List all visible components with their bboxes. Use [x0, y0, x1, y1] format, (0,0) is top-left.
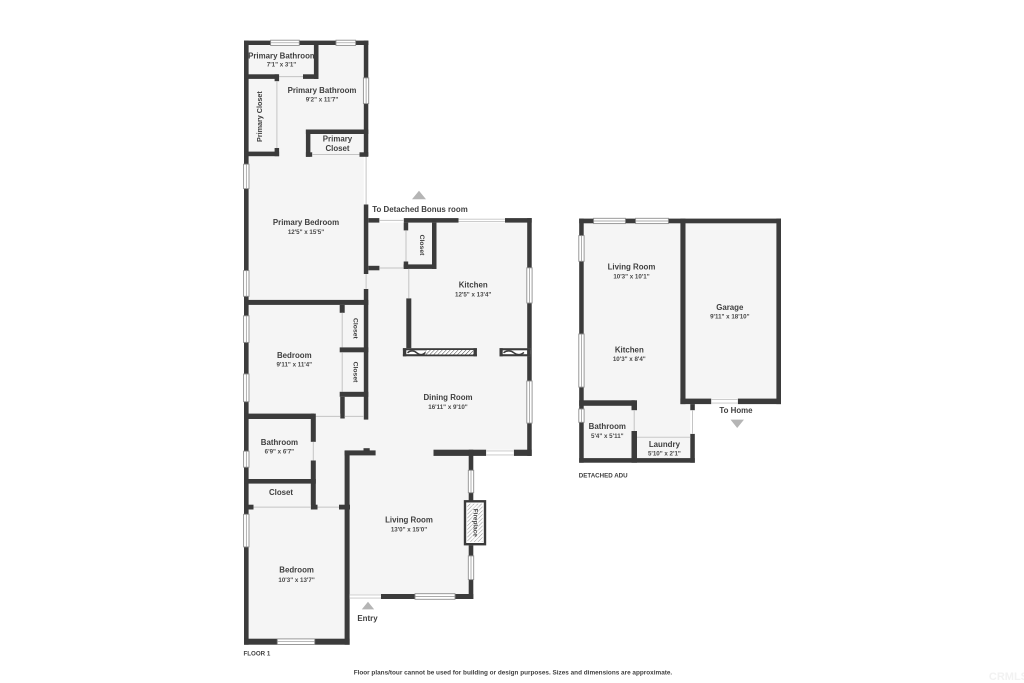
svg-text:FLOOR 1: FLOOR 1: [244, 651, 271, 658]
svg-text:Living Room: Living Room: [385, 516, 433, 525]
svg-text:To Home: To Home: [719, 406, 753, 415]
svg-text:Bathroom: Bathroom: [261, 438, 298, 447]
svg-text:Kitchen: Kitchen: [459, 281, 488, 290]
svg-text:9'11" x 18'10": 9'11" x 18'10": [710, 314, 750, 321]
svg-text:5'4" x 5'11": 5'4" x 5'11": [591, 433, 624, 440]
svg-text:Bedroom: Bedroom: [279, 566, 314, 575]
svg-text:5'10" x 2'1": 5'10" x 2'1": [648, 451, 681, 458]
svg-text:Closet: Closet: [269, 488, 293, 497]
svg-text:Living Room: Living Room: [608, 263, 656, 272]
svg-text:16'11" x 9'10": 16'11" x 9'10": [428, 404, 468, 411]
svg-text:Closet: Closet: [352, 318, 359, 340]
svg-text:Primary Bathroom: Primary Bathroom: [288, 86, 357, 95]
svg-text:12'5" x 13'4": 12'5" x 13'4": [455, 291, 491, 298]
svg-text:6'9" x 6'7": 6'9" x 6'7": [265, 449, 295, 456]
svg-text:Laundry: Laundry: [649, 440, 681, 449]
svg-text:9'2" x 11'7": 9'2" x 11'7": [306, 97, 339, 104]
svg-text:Entry: Entry: [357, 614, 378, 623]
svg-text:Primary Closet: Primary Closet: [255, 91, 264, 142]
svg-text:Dining Room: Dining Room: [423, 393, 472, 402]
svg-text:Floor plans/tour cannot be use: Floor plans/tour cannot be used for buil…: [354, 669, 673, 676]
svg-text:Bathroom: Bathroom: [589, 422, 626, 431]
svg-text:Garage: Garage: [716, 303, 744, 312]
svg-text:To Detached Bonus room: To Detached Bonus room: [372, 205, 467, 214]
svg-text:CRMLS: CRMLS: [989, 671, 1024, 683]
svg-text:Primary: Primary: [323, 135, 353, 144]
svg-text:9'11" x 11'4": 9'11" x 11'4": [276, 362, 312, 369]
svg-text:Closet: Closet: [418, 235, 425, 257]
svg-text:10'3" x 13'7": 10'3" x 13'7": [278, 577, 314, 584]
svg-text:Fireplace: Fireplace: [472, 509, 479, 538]
svg-text:Bedroom: Bedroom: [277, 351, 312, 360]
svg-text:Closet: Closet: [325, 144, 349, 153]
svg-text:Kitchen: Kitchen: [615, 345, 644, 354]
svg-text:10'3" x 8'4": 10'3" x 8'4": [613, 356, 646, 363]
svg-text:10'3" x 10'1": 10'3" x 10'1": [613, 274, 649, 281]
svg-text:Primary Bathroom: Primary Bathroom: [248, 51, 317, 60]
svg-text:Closet: Closet: [352, 362, 359, 384]
svg-text:Primary Bedroom: Primary Bedroom: [273, 218, 339, 227]
svg-text:12'5" x 15'5": 12'5" x 15'5": [288, 229, 324, 236]
svg-text:DETACHED ADU: DETACHED ADU: [579, 473, 628, 480]
svg-text:7'1" x 3'1": 7'1" x 3'1": [267, 62, 297, 69]
svg-text:13'0" x 15'0": 13'0" x 15'0": [391, 527, 427, 534]
